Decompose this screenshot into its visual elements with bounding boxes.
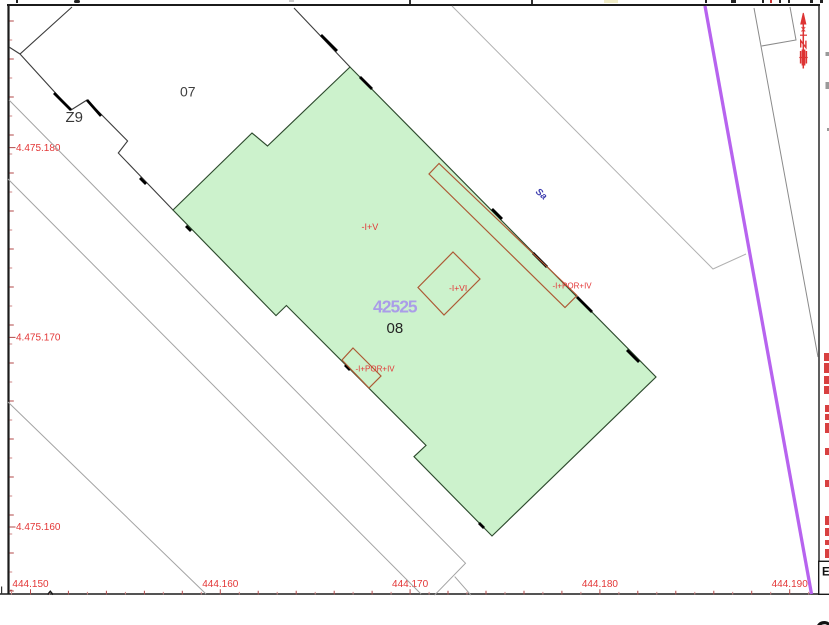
svg-text:444.150: 444.150 xyxy=(12,579,49,590)
svg-text:4.475.180: 4.475.180 xyxy=(16,143,61,154)
svg-text:444.190: 444.190 xyxy=(772,579,809,590)
svg-text:444.160: 444.160 xyxy=(202,579,239,590)
svg-text:08: 08 xyxy=(387,320,404,337)
svg-text:-I+V: -I+V xyxy=(362,222,379,232)
svg-text:07: 07 xyxy=(180,84,196,100)
svg-text:-I+VI: -I+VI xyxy=(449,283,467,293)
svg-text:Z9: Z9 xyxy=(66,109,84,126)
svg-text:444.170: 444.170 xyxy=(392,579,429,590)
svg-text:-I+POR+IV: -I+POR+IV xyxy=(356,364,396,373)
svg-text:-I+POR+IV: -I+POR+IV xyxy=(553,282,593,291)
svg-text:4.475.160: 4.475.160 xyxy=(16,522,61,533)
svg-text:444.180: 444.180 xyxy=(582,579,619,590)
svg-text:4.475.170: 4.475.170 xyxy=(16,333,61,344)
svg-text:E: E xyxy=(822,566,829,578)
svg-text:42525: 42525 xyxy=(373,297,418,317)
